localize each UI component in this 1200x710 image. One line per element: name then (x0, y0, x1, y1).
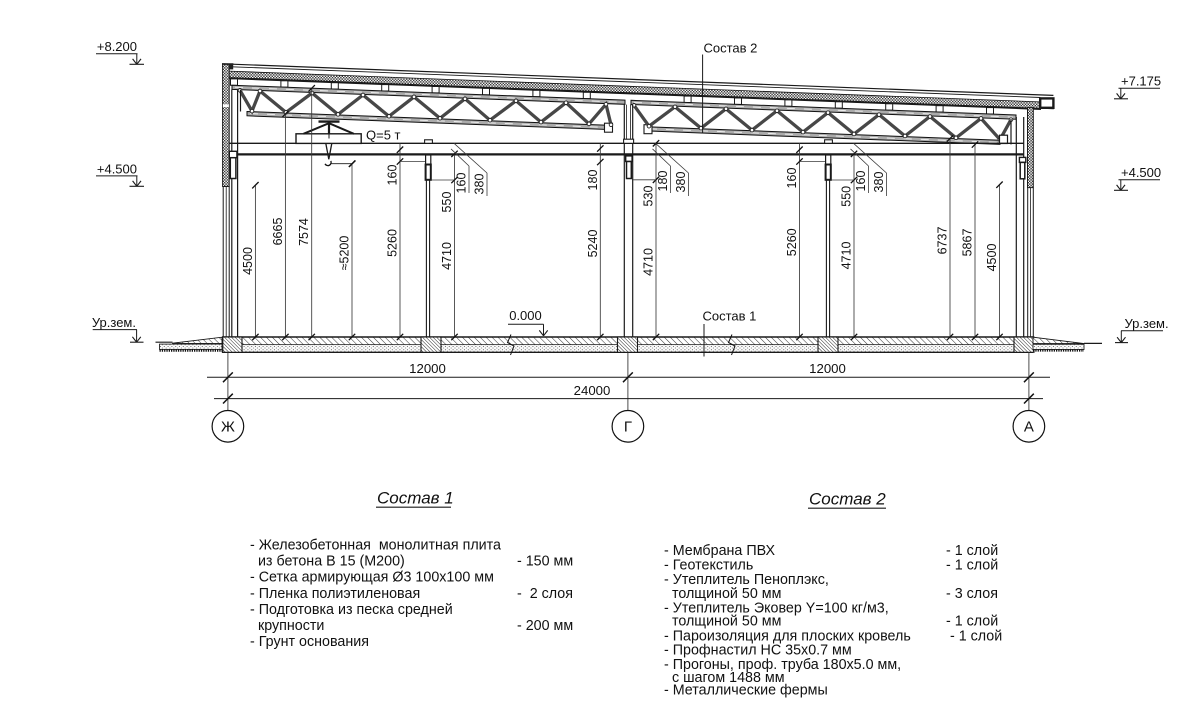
svg-text:+8.200: +8.200 (97, 39, 137, 54)
svg-text:5867: 5867 (961, 229, 975, 257)
svg-text:- 1 слой: - 1 слой (946, 614, 998, 630)
svg-text:- Металлические фермы: - Металлические фермы (664, 683, 828, 699)
svg-text:Q=5 т: Q=5 т (366, 128, 401, 143)
svg-text:- Грунт основания: - Грунт основания (250, 634, 369, 650)
svg-text:+4.500: +4.500 (1121, 165, 1161, 180)
svg-text:- Профнастил НС 35х0.7 мм: - Профнастил НС 35х0.7 мм (664, 643, 852, 659)
svg-text:24000: 24000 (574, 383, 611, 398)
svg-text:380: 380 (674, 172, 688, 193)
svg-text:5260: 5260 (785, 228, 799, 256)
svg-text:Состав 1: Состав 1 (703, 309, 757, 324)
svg-text:5240: 5240 (586, 230, 600, 258)
svg-text:- 150 мм: - 150 мм (517, 554, 573, 570)
svg-text:Состав 1: Состав 1 (377, 489, 454, 508)
svg-text:4500: 4500 (985, 244, 999, 272)
svg-text:5260: 5260 (386, 229, 400, 257)
svg-text:- 1 слой: - 1 слой (946, 557, 998, 573)
svg-text:Ж: Ж (221, 419, 235, 436)
svg-text:160: 160 (854, 171, 868, 192)
svg-text:6665: 6665 (271, 218, 285, 246)
svg-text:+7.175: +7.175 (1121, 74, 1161, 89)
svg-text:7574: 7574 (297, 218, 311, 246)
svg-text:Ур.зем.: Ур.зем. (1125, 316, 1169, 331)
svg-text:160: 160 (386, 165, 400, 186)
svg-text:160: 160 (455, 173, 469, 194)
svg-text:4710: 4710 (440, 242, 454, 270)
svg-text:180: 180 (586, 170, 600, 191)
svg-text:550: 550 (840, 186, 854, 207)
svg-text:- 1 слой: - 1 слой (946, 629, 1002, 645)
svg-text:0.000: 0.000 (509, 308, 542, 323)
svg-text:≈5200: ≈5200 (338, 236, 352, 271)
svg-text:Состав 2: Состав 2 (704, 41, 758, 56)
svg-text:4710: 4710 (642, 248, 656, 276)
svg-text:12000: 12000 (409, 361, 446, 376)
svg-text:из бетона В 15 (М200): из бетона В 15 (М200) (250, 554, 405, 570)
svg-text:- Пленка полиэтиленовая: - Пленка полиэтиленовая (250, 586, 420, 602)
svg-text:550: 550 (440, 192, 454, 213)
svg-text:530: 530 (642, 186, 656, 207)
svg-text:6737: 6737 (936, 227, 950, 255)
svg-text:- 3 слоя: - 3 слоя (946, 586, 998, 602)
svg-text:180: 180 (656, 171, 670, 192)
svg-text:Состав 2: Состав 2 (809, 490, 886, 509)
svg-text:- 2 слоя: - 2 слоя (517, 586, 573, 602)
svg-text:- Железобетонная монолитная п: - Железобетонная монолитная плита (250, 538, 501, 554)
svg-text:толщиной 50 мм: толщиной 50 мм (664, 614, 781, 630)
svg-text:+4.500: +4.500 (97, 161, 137, 176)
svg-text:Ур.зем.: Ур.зем. (92, 315, 136, 330)
svg-text:- Подготовка из песка средней: - Подготовка из песка средней (250, 602, 453, 618)
svg-text:4710: 4710 (840, 242, 854, 270)
svg-text:4500: 4500 (241, 247, 255, 275)
svg-text:Г: Г (624, 419, 632, 436)
svg-text:- Сетка армирующая Ø3 100х100: - Сетка армирующая Ø3 100х100 мм (250, 570, 494, 586)
svg-text:- 200 мм: - 200 мм (517, 618, 573, 634)
svg-text:12000: 12000 (809, 361, 846, 376)
svg-text:А: А (1024, 419, 1034, 436)
svg-text:крупности: крупности (250, 618, 324, 634)
svg-text:160: 160 (785, 168, 799, 189)
svg-text:380: 380 (473, 174, 487, 195)
svg-text:380: 380 (872, 172, 886, 193)
